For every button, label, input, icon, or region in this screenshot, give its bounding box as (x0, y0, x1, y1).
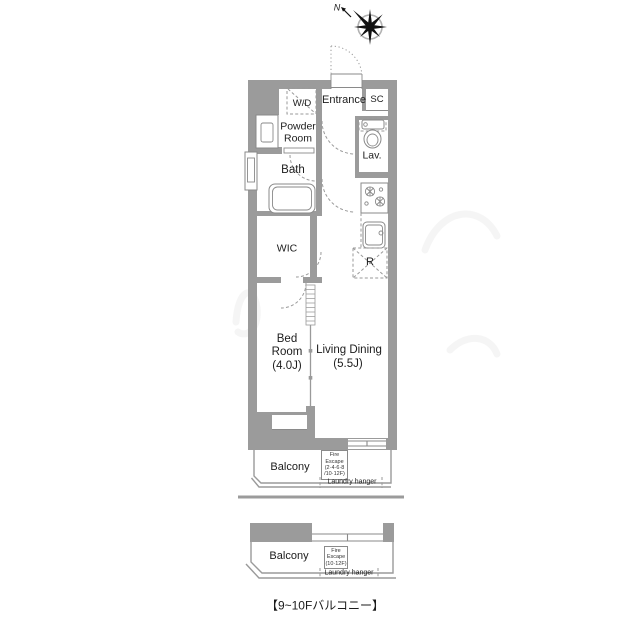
room-label-powder-2: Room (284, 133, 312, 144)
stove-icon (361, 183, 388, 213)
sub-fire-escape-box: Fire Escape (10·12F) (324, 546, 348, 569)
room-label-sc: SC (370, 95, 383, 105)
floorplan-page: N W/D Entrance SC Powder Room Lav. Bath … (0, 0, 640, 640)
room-label-living-dining: Living Dining (316, 344, 382, 356)
fire-escape-box: Fire Escape (2·4·6·8 /10·12F) (321, 450, 348, 480)
kitchen-sink-icon (361, 213, 385, 248)
sub-balcony-label: Balcony (269, 551, 308, 563)
sliding-partition (306, 285, 315, 406)
room-label-wd: W/D (293, 99, 311, 109)
sub-laundry-hanger-label: Laundry hanger (324, 569, 373, 576)
room-label-bed-1: Bed (277, 333, 297, 345)
floor-plan-drawing (0, 0, 640, 640)
room-label-wic: WIC (277, 243, 297, 254)
room-label-lavatory: Lav. (362, 150, 381, 161)
laundry-hanger-label: Laundry hanger (327, 478, 376, 485)
toilet-icon (359, 118, 386, 148)
compass-rose-icon (341, 7, 387, 45)
room-label-bath: Bath (281, 164, 305, 176)
balcony-label: Balcony (270, 462, 309, 474)
bathtub-icon (269, 184, 315, 213)
fire-escape-line: /10·12F) (324, 471, 345, 477)
water-heater-icon (245, 152, 257, 190)
sub-balcony-caption: 【9~10Fバルコニー】 (266, 600, 384, 613)
room-label-powder-1: Powder (280, 121, 316, 132)
room-label-bed-size: (4.0J) (272, 360, 301, 372)
room-label-living-dining-size: (5.5J) (333, 358, 362, 370)
compass-north-label: N (334, 3, 341, 12)
room-label-bed-2: Room (272, 346, 303, 358)
refrigerator-label: R (366, 257, 374, 269)
room-label-entrance: Entrance (322, 95, 366, 107)
washbasin-icon (256, 115, 278, 148)
fire-escape-line: (10·12F) (325, 561, 346, 567)
